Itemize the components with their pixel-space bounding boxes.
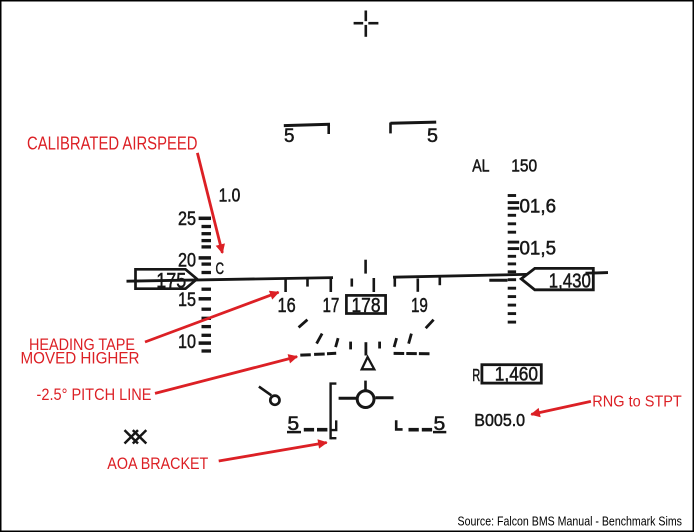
svg-text:19: 19	[411, 294, 428, 317]
svg-text:178: 178	[352, 294, 381, 317]
svg-text:01,5: 01,5	[520, 239, 557, 260]
svg-text:5: 5	[427, 125, 438, 147]
svg-text:CALIBRATED AIRSPEED: CALIBRATED AIRSPEED	[27, 132, 198, 153]
svg-text:AOA BRACKET: AOA BRACKET	[107, 454, 208, 473]
svg-text:16: 16	[278, 294, 296, 317]
svg-text:25: 25	[178, 208, 196, 230]
svg-text:AL: AL	[472, 156, 489, 176]
svg-text:150: 150	[511, 156, 537, 176]
svg-text:MOVED HIGHER: MOVED HIGHER	[21, 348, 140, 367]
svg-text:1,460: 1,460	[495, 365, 538, 386]
svg-text:B005.0: B005.0	[474, 410, 525, 430]
svg-text:1.0: 1.0	[219, 185, 241, 206]
svg-text:R: R	[472, 365, 480, 385]
svg-text:Source: Falcon BMS Manual - Be: Source: Falcon BMS Manual - Benchmark Si…	[458, 514, 683, 529]
svg-text:C: C	[216, 259, 225, 278]
svg-text:01,6: 01,6	[520, 196, 557, 217]
svg-text:RNG to STPT: RNG to STPT	[592, 394, 682, 411]
svg-text:-2.5° PITCH LINE: -2.5° PITCH LINE	[37, 385, 152, 404]
svg-text:10: 10	[178, 331, 196, 353]
svg-text:5: 5	[284, 125, 295, 147]
svg-text:175: 175	[156, 269, 186, 292]
svg-text:1,430: 1,430	[549, 271, 591, 293]
svg-text:17: 17	[322, 294, 339, 317]
